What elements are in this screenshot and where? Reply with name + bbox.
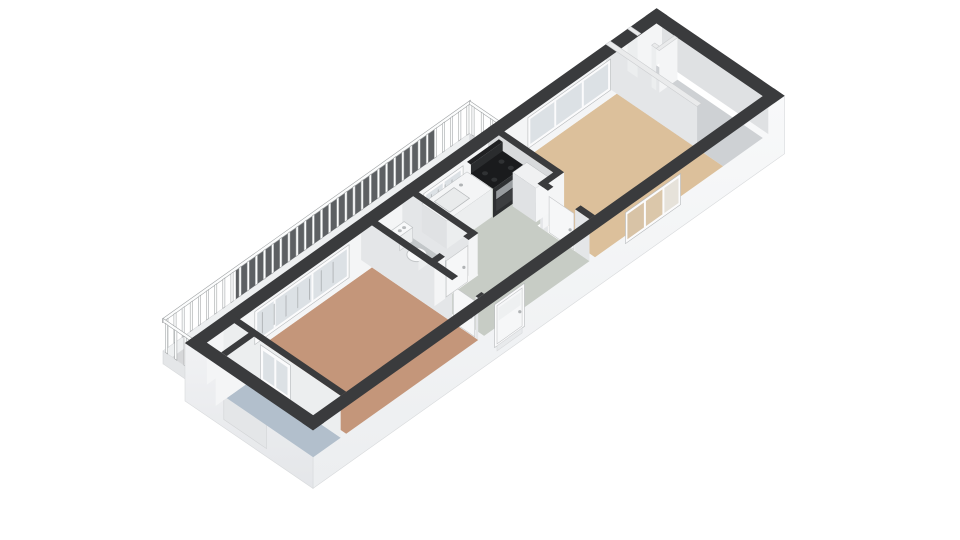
entry-door-handle [518,310,521,313]
railing-baluster [434,128,436,159]
railing-baluster [175,330,177,361]
faucet [459,184,463,187]
railing-baluster [361,180,363,211]
railing-through-glass [297,287,298,309]
railing-baluster [369,174,371,205]
railing-baluster [207,290,209,321]
railing-baluster [394,157,396,188]
railing-through-glass [286,295,287,317]
railing-baluster [165,323,167,354]
window-mullion [311,273,313,301]
railing-baluster [402,151,404,182]
railing-baluster [418,139,420,170]
railing-baluster [198,295,200,326]
railing-baluster [190,301,192,332]
flush-button [398,229,402,232]
railing-through-glass [262,312,263,334]
railing-baluster [223,278,225,309]
railing-baluster [386,162,388,193]
railing-baluster [263,249,265,280]
floorplan-page [0,0,960,540]
burner [499,160,505,164]
railing-baluster [272,243,274,273]
floorplan-3d-render [0,0,960,540]
burner [482,171,488,175]
living-room-door-handle [569,228,572,231]
railing-baluster [288,232,290,263]
railing-baluster [451,116,453,147]
window-mullion [582,81,584,107]
railing-baluster [280,238,282,269]
railing-baluster [329,203,331,234]
railing-baluster [345,191,347,222]
railing-baluster [320,209,322,240]
railing-baluster [459,110,461,141]
burner [491,178,497,182]
railing-baluster [472,106,474,137]
toilet-door-handle [462,266,465,269]
railing-baluster [231,272,233,303]
flush-button [402,226,406,229]
railing-baluster [467,105,469,136]
railing-baluster [255,255,257,286]
railing-through-glass [333,262,334,284]
burner [508,166,514,170]
railing-baluster [410,145,412,176]
railing-through-glass [321,270,322,292]
railing-baluster [337,197,339,228]
railing-baluster [312,214,314,245]
window-mullion [554,101,556,127]
balcony-door-mullion [274,358,276,387]
railing-through-glass [309,278,310,300]
railing-baluster [304,220,306,251]
railing-through-glass [274,304,275,326]
railing-baluster [296,226,298,257]
railing-baluster [377,168,379,199]
railing-baluster [442,122,444,153]
railing-baluster [426,134,428,165]
railing-baluster [215,284,217,315]
railing-baluster [353,186,355,217]
railing-baluster [239,266,241,297]
railing-baluster [247,261,249,292]
